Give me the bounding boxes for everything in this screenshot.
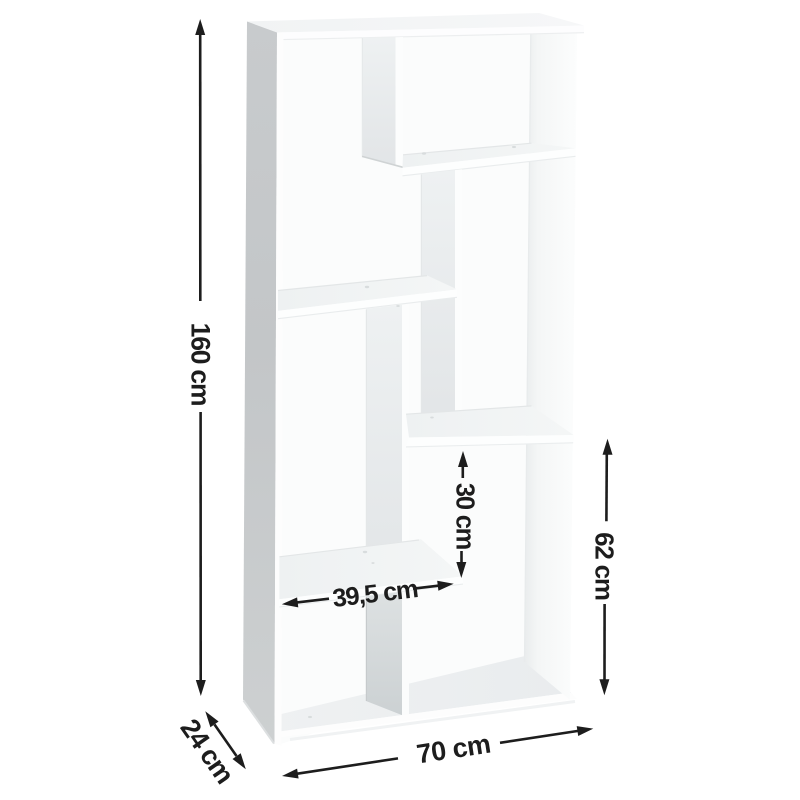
svg-text:30 cm: 30 cm [451, 483, 479, 550]
svg-text:62 cm: 62 cm [590, 532, 620, 600]
svg-text:160 cm: 160 cm [186, 323, 216, 406]
